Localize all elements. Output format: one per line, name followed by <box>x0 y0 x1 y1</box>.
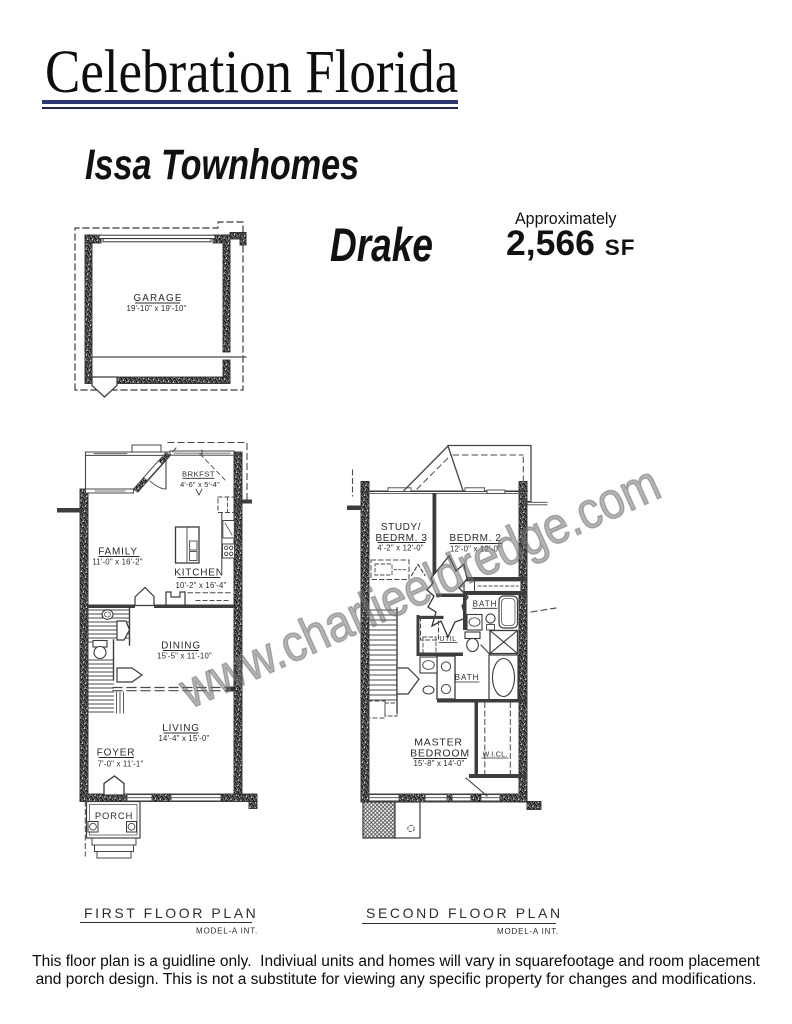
svg-text:14'-4" x 15'-0": 14'-4" x 15'-0" <box>159 734 210 743</box>
svg-text:15'-8" x 14'-0": 15'-8" x 14'-0" <box>414 759 465 768</box>
svg-text:PORCH: PORCH <box>95 811 133 822</box>
svg-text:BEDROOM: BEDROOM <box>410 748 470 760</box>
svg-text:4'-2" x 12'-0": 4'-2" x 12'-0" <box>377 544 423 553</box>
svg-text:BATH: BATH <box>473 600 498 609</box>
svg-text:KITCHEN: KITCHEN <box>174 568 224 579</box>
svg-text:STUDY/: STUDY/ <box>381 522 421 533</box>
svg-text:LIVING: LIVING <box>162 723 200 734</box>
svg-text:www.charlieeldredge.com: www.charlieeldredge.com <box>171 455 669 720</box>
svg-text:W.I.CL.: W.I.CL. <box>483 750 508 759</box>
svg-text:FOYER: FOYER <box>97 748 135 759</box>
svg-text:SECOND FLOOR PLAN: SECOND FLOOR PLAN <box>366 905 563 921</box>
svg-text:MODEL-A INT.: MODEL-A INT. <box>497 927 559 936</box>
svg-text:FIRST FLOOR PLAN: FIRST FLOOR PLAN <box>84 905 258 921</box>
svg-text:BRKFST: BRKFST <box>182 470 215 479</box>
svg-text:FAMILY: FAMILY <box>98 547 138 558</box>
svg-text:MODEL-A INT.: MODEL-A INT. <box>196 927 258 936</box>
svg-text:DINING: DINING <box>161 641 201 652</box>
svg-text:BATH: BATH <box>455 673 480 682</box>
svg-text:11'-0" x 16'-2": 11'-0" x 16'-2" <box>92 558 142 567</box>
svg-text:UTIL: UTIL <box>439 636 456 643</box>
svg-text:19'-10" x 19'-10": 19'-10" x 19'-10" <box>126 304 186 313</box>
svg-text:GARAGE: GARAGE <box>133 293 182 304</box>
svg-text:7'-0" x 11'-1": 7'-0" x 11'-1" <box>98 760 144 769</box>
svg-text:10'-2" x 16'-4": 10'-2" x 16'-4" <box>176 581 227 590</box>
svg-text:4'-6" x 5'-4": 4'-6" x 5'-4" <box>180 480 220 489</box>
